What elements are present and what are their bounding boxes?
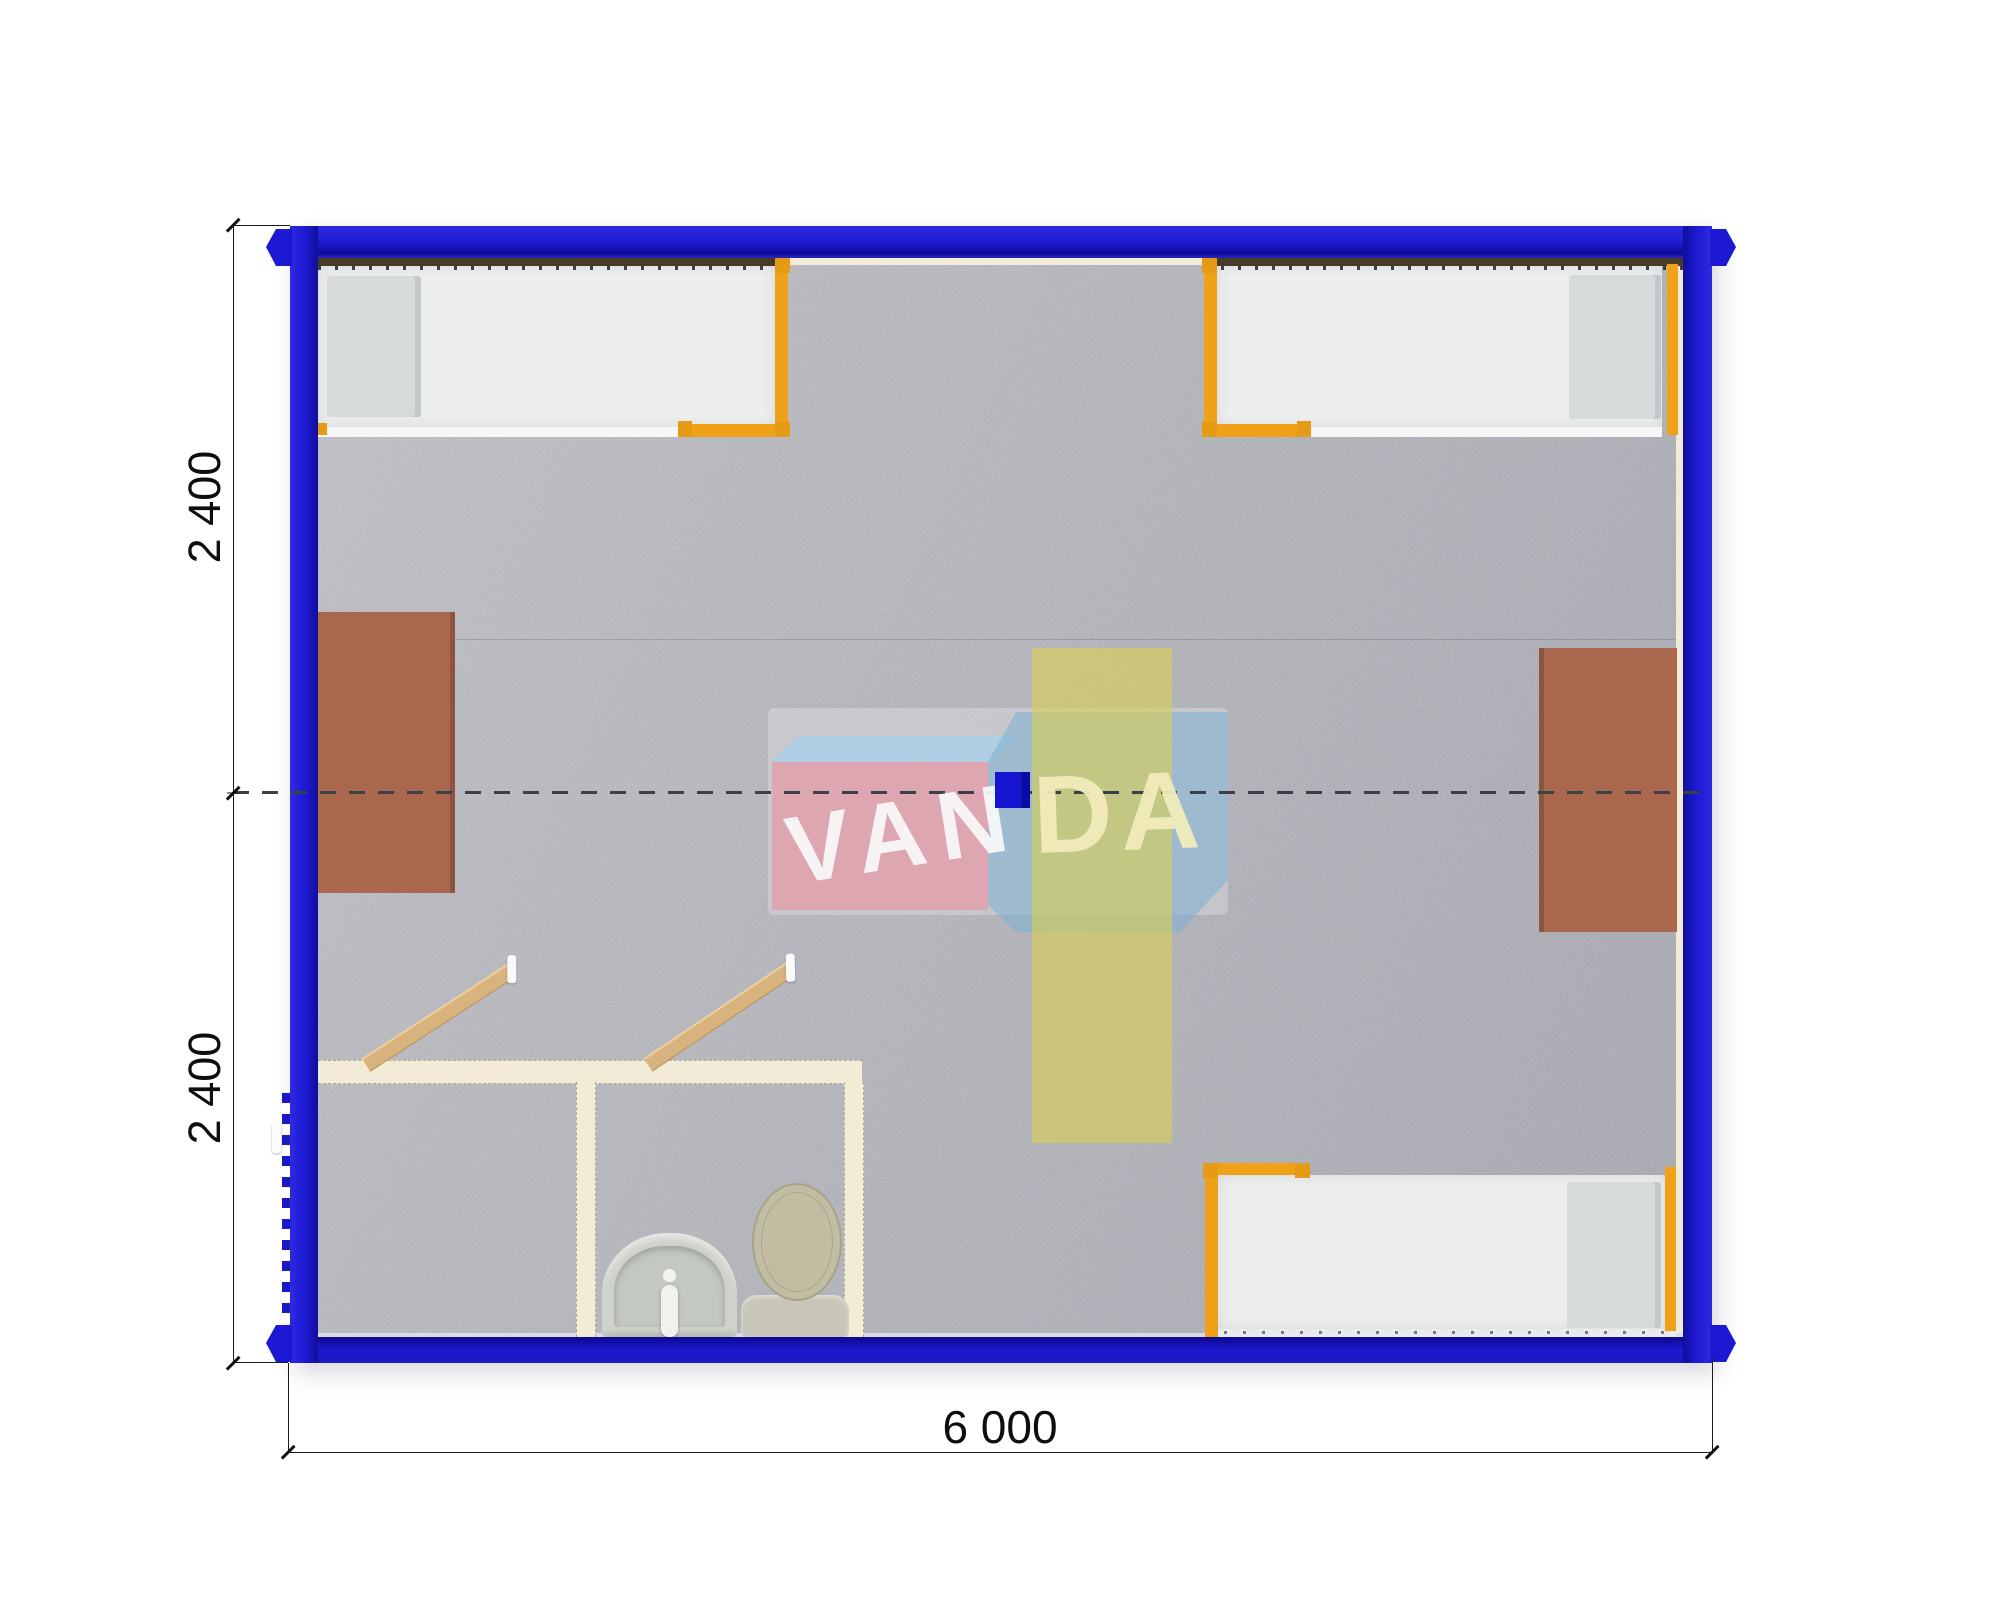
door-handle	[786, 954, 795, 982]
table-right	[1539, 648, 1677, 932]
watermark-yellow-ribbon	[1032, 648, 1172, 1143]
bed-rail-ticks	[1205, 1329, 1677, 1337]
toilet-lid-inner	[761, 1192, 833, 1292]
pillow	[1569, 275, 1661, 419]
wall-top	[290, 226, 1712, 258]
bed-bottom-right	[1205, 1163, 1677, 1337]
corner-casting-bottom-left	[266, 1325, 292, 1362]
bed-side-rail	[1217, 424, 1309, 437]
bed-wall-rail	[1204, 258, 1683, 266]
bed-frame-post	[678, 421, 692, 437]
entry-door-handle	[272, 1123, 281, 1153]
pillow	[1567, 1182, 1661, 1328]
bed-frame-post	[1297, 421, 1311, 437]
watermark-blue-cube	[995, 772, 1030, 808]
bed-side-rail	[680, 424, 775, 437]
bed-foot-frame	[1205, 1163, 1218, 1337]
dimension-tick-stub	[227, 793, 239, 794]
dimension-extension-bottom	[233, 1362, 288, 1363]
bed-top-left	[318, 258, 788, 437]
dimension-extension-right-drop	[1712, 1358, 1713, 1453]
dimension-extension-top	[233, 225, 290, 226]
bed-rail-ticks	[1204, 266, 1683, 270]
floor-plan-canvas: VAN DA 2 400 2 400 6 000	[0, 0, 2000, 1622]
bed-frame-post	[1202, 258, 1217, 273]
dimension-label-module-top: 2 400	[179, 451, 231, 564]
bed-frame-post	[1202, 422, 1217, 437]
dimension-label-module-bottom: 2 400	[179, 1032, 231, 1145]
bed-wall-rail	[318, 258, 788, 266]
bed-frame-post	[1295, 1163, 1310, 1178]
wall-right	[1683, 226, 1712, 1363]
dimension-label-width: 6 000	[942, 1400, 1057, 1454]
bed-frame-post	[1203, 1163, 1218, 1178]
toilet-lid	[752, 1183, 842, 1301]
bed-head-frame	[1667, 264, 1678, 435]
bathroom-wall-horizontal	[318, 1060, 862, 1084]
sink	[602, 1233, 737, 1337]
corner-casting-top-right	[1710, 229, 1736, 266]
bed-frame-post	[775, 422, 790, 437]
bed-top-right	[1204, 258, 1683, 437]
bed-foot-frame	[1204, 260, 1217, 437]
corner-casting-top-left	[266, 229, 292, 266]
corner-casting-bottom-right	[1710, 1325, 1736, 1362]
bathroom-wall-partition	[576, 1082, 596, 1337]
bathroom-wall-right	[844, 1082, 864, 1337]
wall-bottom	[290, 1337, 1712, 1363]
wall-left	[290, 226, 318, 1363]
watermark-text-da: DA	[1031, 753, 1265, 871]
sink-faucet-knob	[663, 1269, 676, 1282]
dimension-extension-left-drop	[288, 1363, 289, 1453]
sink-faucet	[661, 1285, 678, 1337]
bed-frame-post	[775, 258, 790, 273]
door-handle	[507, 955, 516, 983]
pillow	[327, 276, 421, 417]
bed-foot-frame	[775, 260, 788, 437]
table-left	[318, 612, 455, 893]
toilet-base	[741, 1295, 849, 1337]
entry-door-marking	[282, 1093, 290, 1322]
bed-head-frame	[1665, 1167, 1676, 1331]
watermark-box-top-face	[772, 736, 1016, 762]
bed-rail-ticks	[318, 266, 788, 270]
